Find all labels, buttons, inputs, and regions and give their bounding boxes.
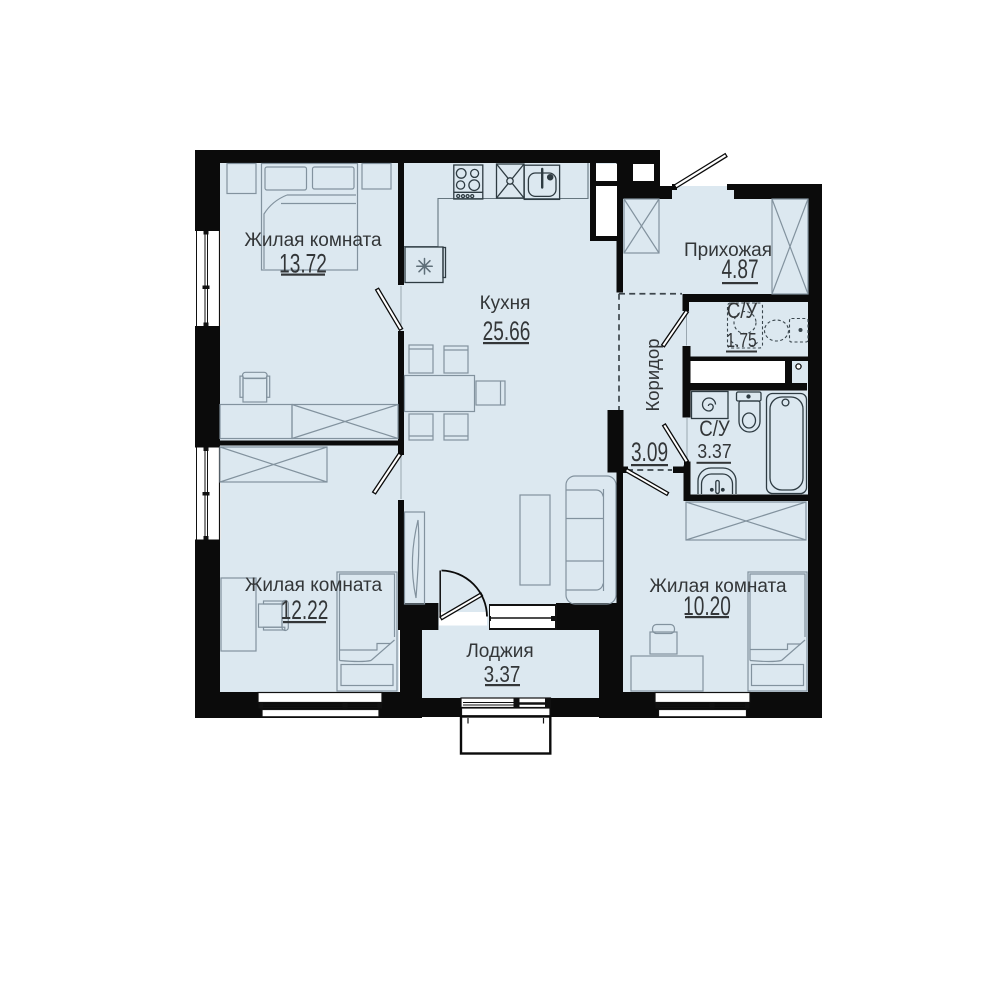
svg-text:С/У: С/У	[699, 418, 731, 442]
svg-text:1.75: 1.75	[726, 329, 756, 351]
svg-text:Кухня: Кухня	[480, 293, 531, 314]
svg-text:Жилая комната: Жилая комната	[245, 575, 383, 596]
svg-text:3.09: 3.09	[631, 437, 668, 467]
svg-text:Лоджия: Лоджия	[466, 641, 533, 662]
svg-text:Коридор: Коридор	[642, 338, 663, 411]
svg-text:4.87: 4.87	[721, 254, 758, 284]
svg-text:3.37: 3.37	[484, 662, 521, 687]
svg-text:12.22: 12.22	[281, 595, 329, 625]
svg-text:25.66: 25.66	[483, 316, 531, 346]
svg-text:С/У: С/У	[727, 300, 759, 324]
svg-text:3.37: 3.37	[697, 440, 731, 462]
